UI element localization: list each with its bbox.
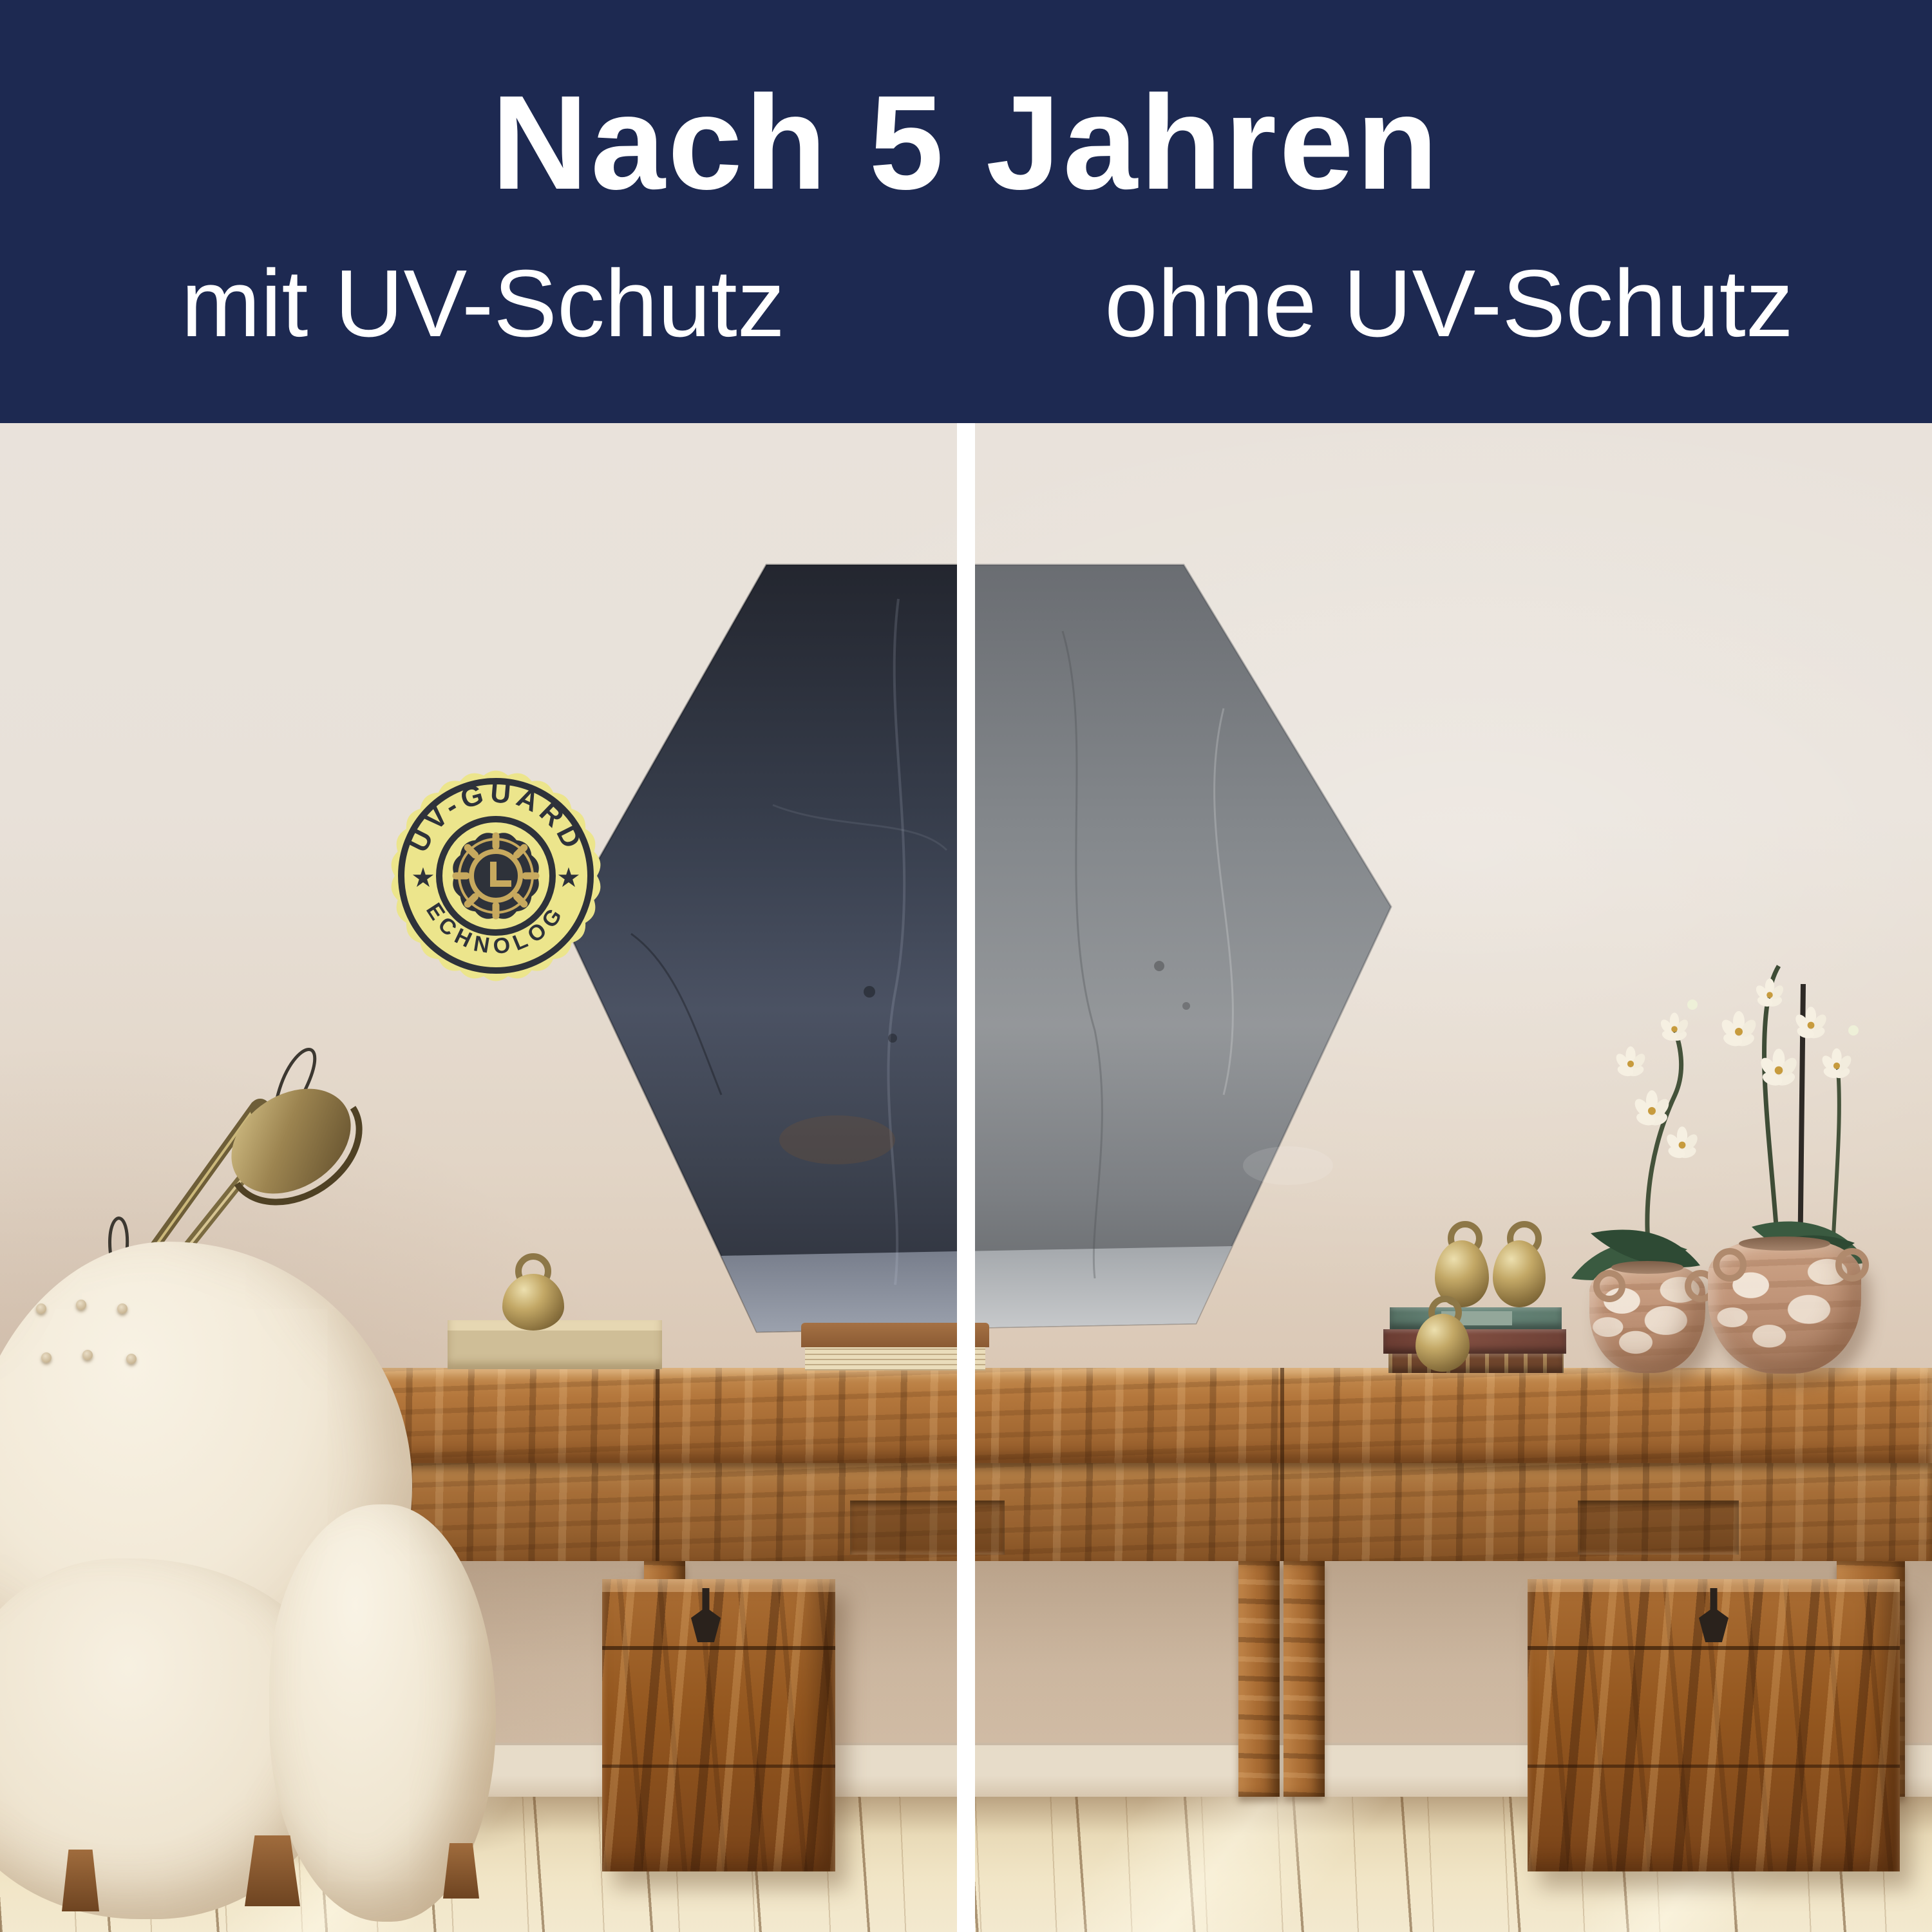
book-maroon: [1383, 1329, 1566, 1354]
drawer-front: [850, 1501, 1005, 1555]
header-title: Nach 5 Jahren: [0, 76, 1932, 210]
leather-pull: [691, 1588, 721, 1642]
leather-pull: [1699, 1588, 1728, 1642]
book-brown: [1388, 1354, 1564, 1373]
wooden-tray: [448, 1320, 662, 1369]
table-seam: [1280, 1368, 1284, 1561]
vase-handle: [1593, 1270, 1625, 1302]
comparison-divider: [957, 422, 975, 1932]
tufting-button: [117, 1303, 128, 1314]
label-without-uv-schutz: ohne UV-Schutz: [966, 256, 1932, 352]
vase-rim: [1739, 1236, 1830, 1251]
table-top: [345, 1368, 1932, 1463]
tufting-button: [41, 1352, 52, 1363]
vase-handle: [1835, 1248, 1869, 1282]
vase-rim: [1611, 1261, 1683, 1274]
table-leg: [1283, 1561, 1325, 1797]
tufting-button: [36, 1303, 46, 1314]
header-banner: Nach 5 Jahren mit UV-Schutz ohne UV-Schu…: [0, 0, 1932, 423]
brass-weight: [1416, 1314, 1470, 1372]
table-seam: [656, 1368, 659, 1561]
marketing-image: UV-GUARD TECHNOLOGY ★ ★: [0, 0, 1932, 1932]
table-leg: [1238, 1561, 1280, 1797]
tufting-button: [82, 1350, 93, 1360]
wooden-chest-right: [1528, 1579, 1900, 1871]
wooden-chest-left: [602, 1579, 835, 1871]
tufting-button: [126, 1354, 137, 1364]
vase-handle: [1713, 1248, 1747, 1282]
tufting-button: [76, 1300, 86, 1310]
drawer-front: [1578, 1501, 1739, 1555]
label-with-uv-schutz: mit UV-Schutz: [0, 256, 966, 352]
